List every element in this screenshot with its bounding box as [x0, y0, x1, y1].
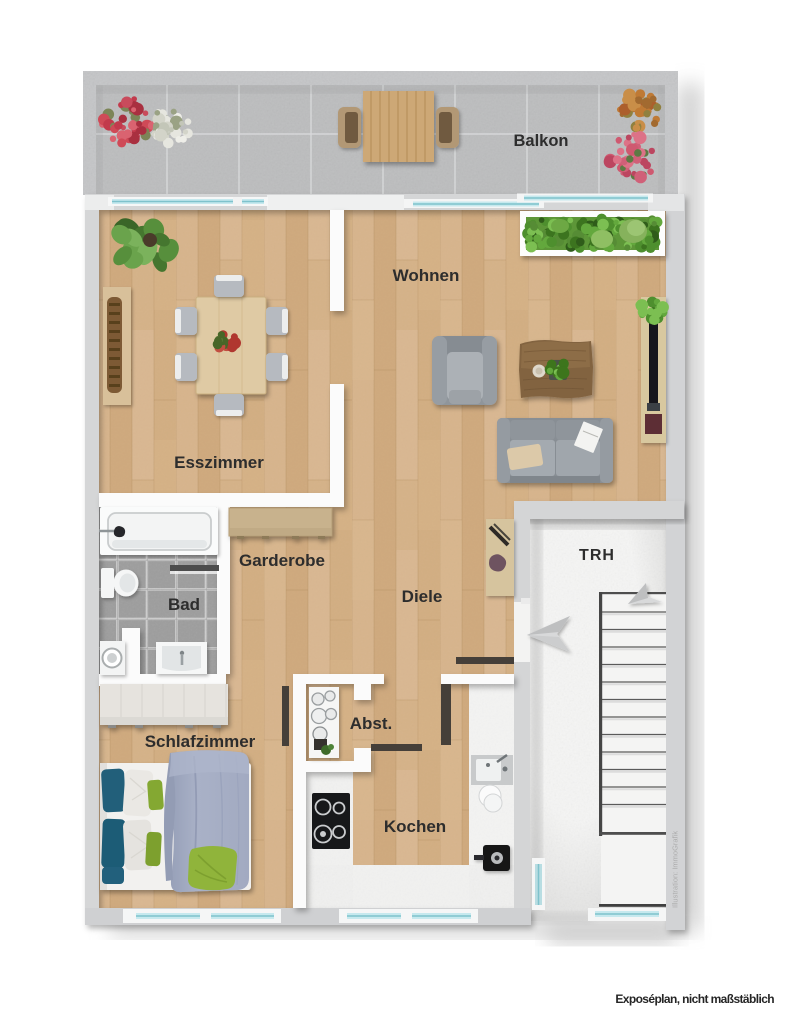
svg-text:Esszimmer: Esszimmer [174, 453, 264, 472]
svg-text:Bad: Bad [168, 595, 200, 614]
svg-text:TRH: TRH [579, 547, 615, 564]
svg-text:Wohnen: Wohnen [393, 266, 460, 285]
svg-text:Abst.: Abst. [350, 714, 393, 733]
svg-text:Garderobe: Garderobe [239, 551, 325, 570]
svg-text:Balkon: Balkon [513, 132, 568, 150]
svg-text:Diele: Diele [402, 587, 443, 606]
svg-text:Kochen: Kochen [384, 817, 446, 836]
svg-text:Exposéplan, nicht maßstäblich: Exposéplan, nicht maßstäblich [615, 992, 774, 1006]
svg-text:Illustration: ImmoGrafik: Illustration: ImmoGrafik [671, 831, 680, 908]
svg-text:Schlafzimmer: Schlafzimmer [145, 732, 256, 751]
